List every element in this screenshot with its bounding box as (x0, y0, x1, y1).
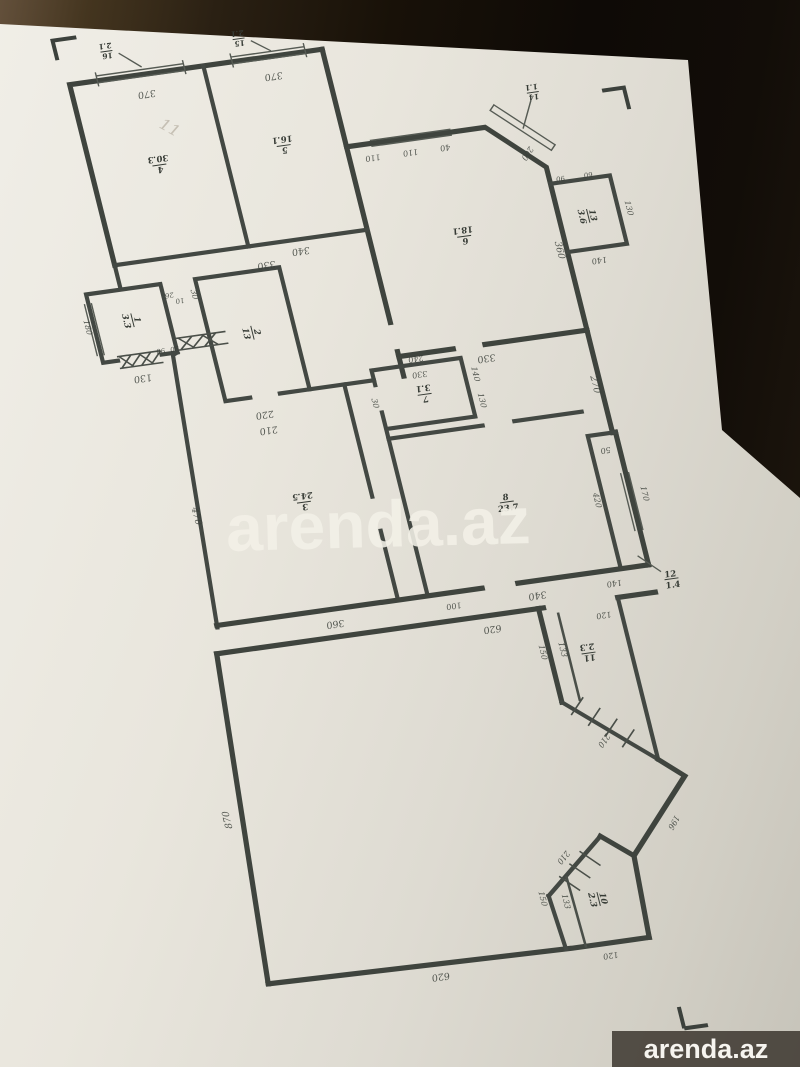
dim-30-room2: 30 (189, 289, 200, 300)
photo-of-floor-plan: 4 30.3 5 16.1 6 18.1 1 3.3 2 (0, 0, 800, 1067)
watermark-center: arenda.az (225, 482, 531, 566)
dim-140-room13: 140 (591, 255, 608, 266)
dim-210-stairs-room10: 210 (555, 848, 572, 866)
room-label-11: 11 2.3 (578, 640, 599, 663)
dim-196-slant: 196 (666, 814, 681, 831)
dim-110-b: 110 (402, 147, 419, 158)
dim-220-room2: 220 (254, 408, 276, 421)
balcony-label-15: 15 2.1 (230, 28, 249, 48)
room-label-2: 2 13 (239, 325, 263, 342)
dim-620-corridor: 620 (482, 622, 503, 635)
dim-330-room2-top: 330 (256, 258, 277, 271)
dim-50-room12: 50 (599, 445, 611, 455)
dim-140-room7: 140 (469, 366, 482, 382)
dim-120-room10: 120 (602, 950, 619, 961)
dim-150-room10: 150 (536, 891, 549, 907)
dim-470-hall: 470 (188, 506, 204, 526)
room-area: 3.3 (119, 313, 132, 329)
balcony-label-16: 16 2.1 (98, 40, 117, 60)
dim-window-370-right: 370 (263, 69, 284, 82)
dim-140-room8: 140 (606, 578, 623, 589)
watermark-badge: arenda.az (612, 1031, 800, 1067)
balcony-14-leader (517, 101, 537, 128)
room-area: 18.1 (451, 223, 474, 236)
room-area: 1.4 (665, 580, 682, 592)
room-label-12: 12 1.4 (662, 569, 682, 592)
balcony-label-14: 14 1.1 (524, 82, 542, 102)
room-area: 16.1 (271, 132, 294, 145)
room-label-4: 4 30.3 (146, 152, 172, 175)
dim-870-west-wall: 870 (220, 810, 235, 829)
room-label-6: 6 18.1 (451, 223, 477, 246)
room-area: 3.1 (414, 382, 431, 394)
room-label-13: 13 3.6 (575, 207, 599, 224)
balcony-15-leader (251, 39, 270, 53)
room-area: 13 (239, 327, 252, 340)
dim-210-room2: 210 (258, 423, 280, 436)
dim-110-a: 110 (364, 152, 381, 163)
room-label-5: 5 16.1 (271, 132, 297, 155)
door-hatches (115, 289, 672, 935)
dim-120-room11: 120 (595, 610, 612, 621)
room-area: 1.1 (524, 82, 539, 93)
dim-10: 10 (174, 296, 186, 306)
dim-330-room6-south: 330 (476, 351, 497, 364)
dim-330-room7: 330 (411, 369, 428, 380)
dim-360-hall: 360 (325, 617, 346, 630)
dim-340: 340 (290, 244, 311, 257)
room-area: 2.1 (98, 40, 114, 51)
room-label-7: 7 3.1 (414, 382, 434, 405)
dim-210-stairs-room11: 210 (596, 731, 613, 749)
room-area: 2.3 (578, 640, 596, 652)
room-area: 3.6 (575, 209, 588, 225)
room-label-1: 1 3.3 (119, 312, 143, 329)
room-area: 2.1 (230, 28, 246, 39)
pencil-note: 11 (156, 114, 183, 140)
dim-130-room13: 130 (622, 200, 635, 216)
dim-30-room7: 30 (369, 398, 380, 409)
dim-130-room1: 130 (132, 371, 153, 384)
room-label-10: 10 2.3 (585, 890, 610, 908)
dim-90-a-room1: 90 (155, 346, 167, 356)
dim-340-room8: 340 (527, 589, 548, 602)
dim-130-room7: 130 (476, 392, 489, 408)
dim-170-room12: 170 (638, 486, 651, 502)
dim-100-room8: 100 (445, 600, 462, 611)
dim-620-bottom: 620 (430, 970, 451, 983)
room-area: 30.3 (146, 152, 169, 165)
dim-window-370-left: 370 (136, 87, 157, 100)
dim-40: 40 (439, 142, 452, 152)
balcony-16-leader (119, 51, 141, 69)
dim-133-room10: 133 (560, 894, 573, 910)
